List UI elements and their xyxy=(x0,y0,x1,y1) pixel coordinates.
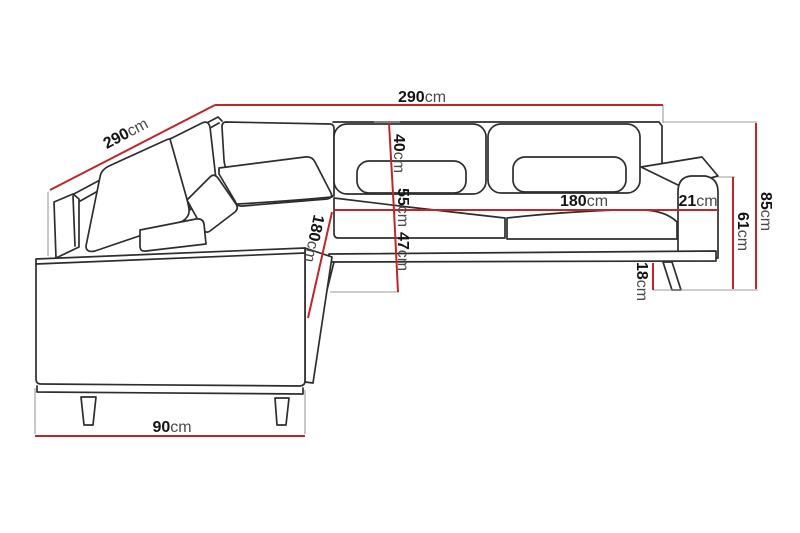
label-base-front-width: 90cm xyxy=(152,419,191,436)
right-base-frame xyxy=(329,251,716,262)
label-top-width: 290cm xyxy=(398,89,446,106)
sofa-dimension-diagram: 290cm 290cm 40cm 55cm 47cm 180cm 21cm 85… xyxy=(0,0,800,533)
lumbar-pillow-2 xyxy=(513,157,626,192)
right-seat-cushion-1 xyxy=(334,198,505,238)
label-total-height: 85cm xyxy=(757,192,774,231)
label-seat-height-cushion: 55cm xyxy=(394,188,411,227)
right-front-leg xyxy=(663,262,681,290)
sofa-drawing xyxy=(36,117,718,425)
left-leg-1 xyxy=(81,397,96,425)
left-leg-2 xyxy=(275,398,289,425)
left-front-face xyxy=(36,248,332,394)
label-seat-width: 180cm xyxy=(560,193,608,210)
label-armrest-height: 61cm xyxy=(734,212,751,251)
label-leg-height: 18cm xyxy=(633,262,650,301)
label-armrest-width: 21cm xyxy=(678,193,717,210)
label-seat-height: 47cm xyxy=(394,232,411,271)
left-armrest xyxy=(54,194,79,258)
diagram-canvas: 290cm 290cm 40cm 55cm 47cm 180cm 21cm 85… xyxy=(0,0,800,533)
label-backrest-height: 40cm xyxy=(390,134,407,173)
right-seat-cushion-2 xyxy=(507,210,677,239)
label-left-depth: 290cm xyxy=(101,115,151,152)
